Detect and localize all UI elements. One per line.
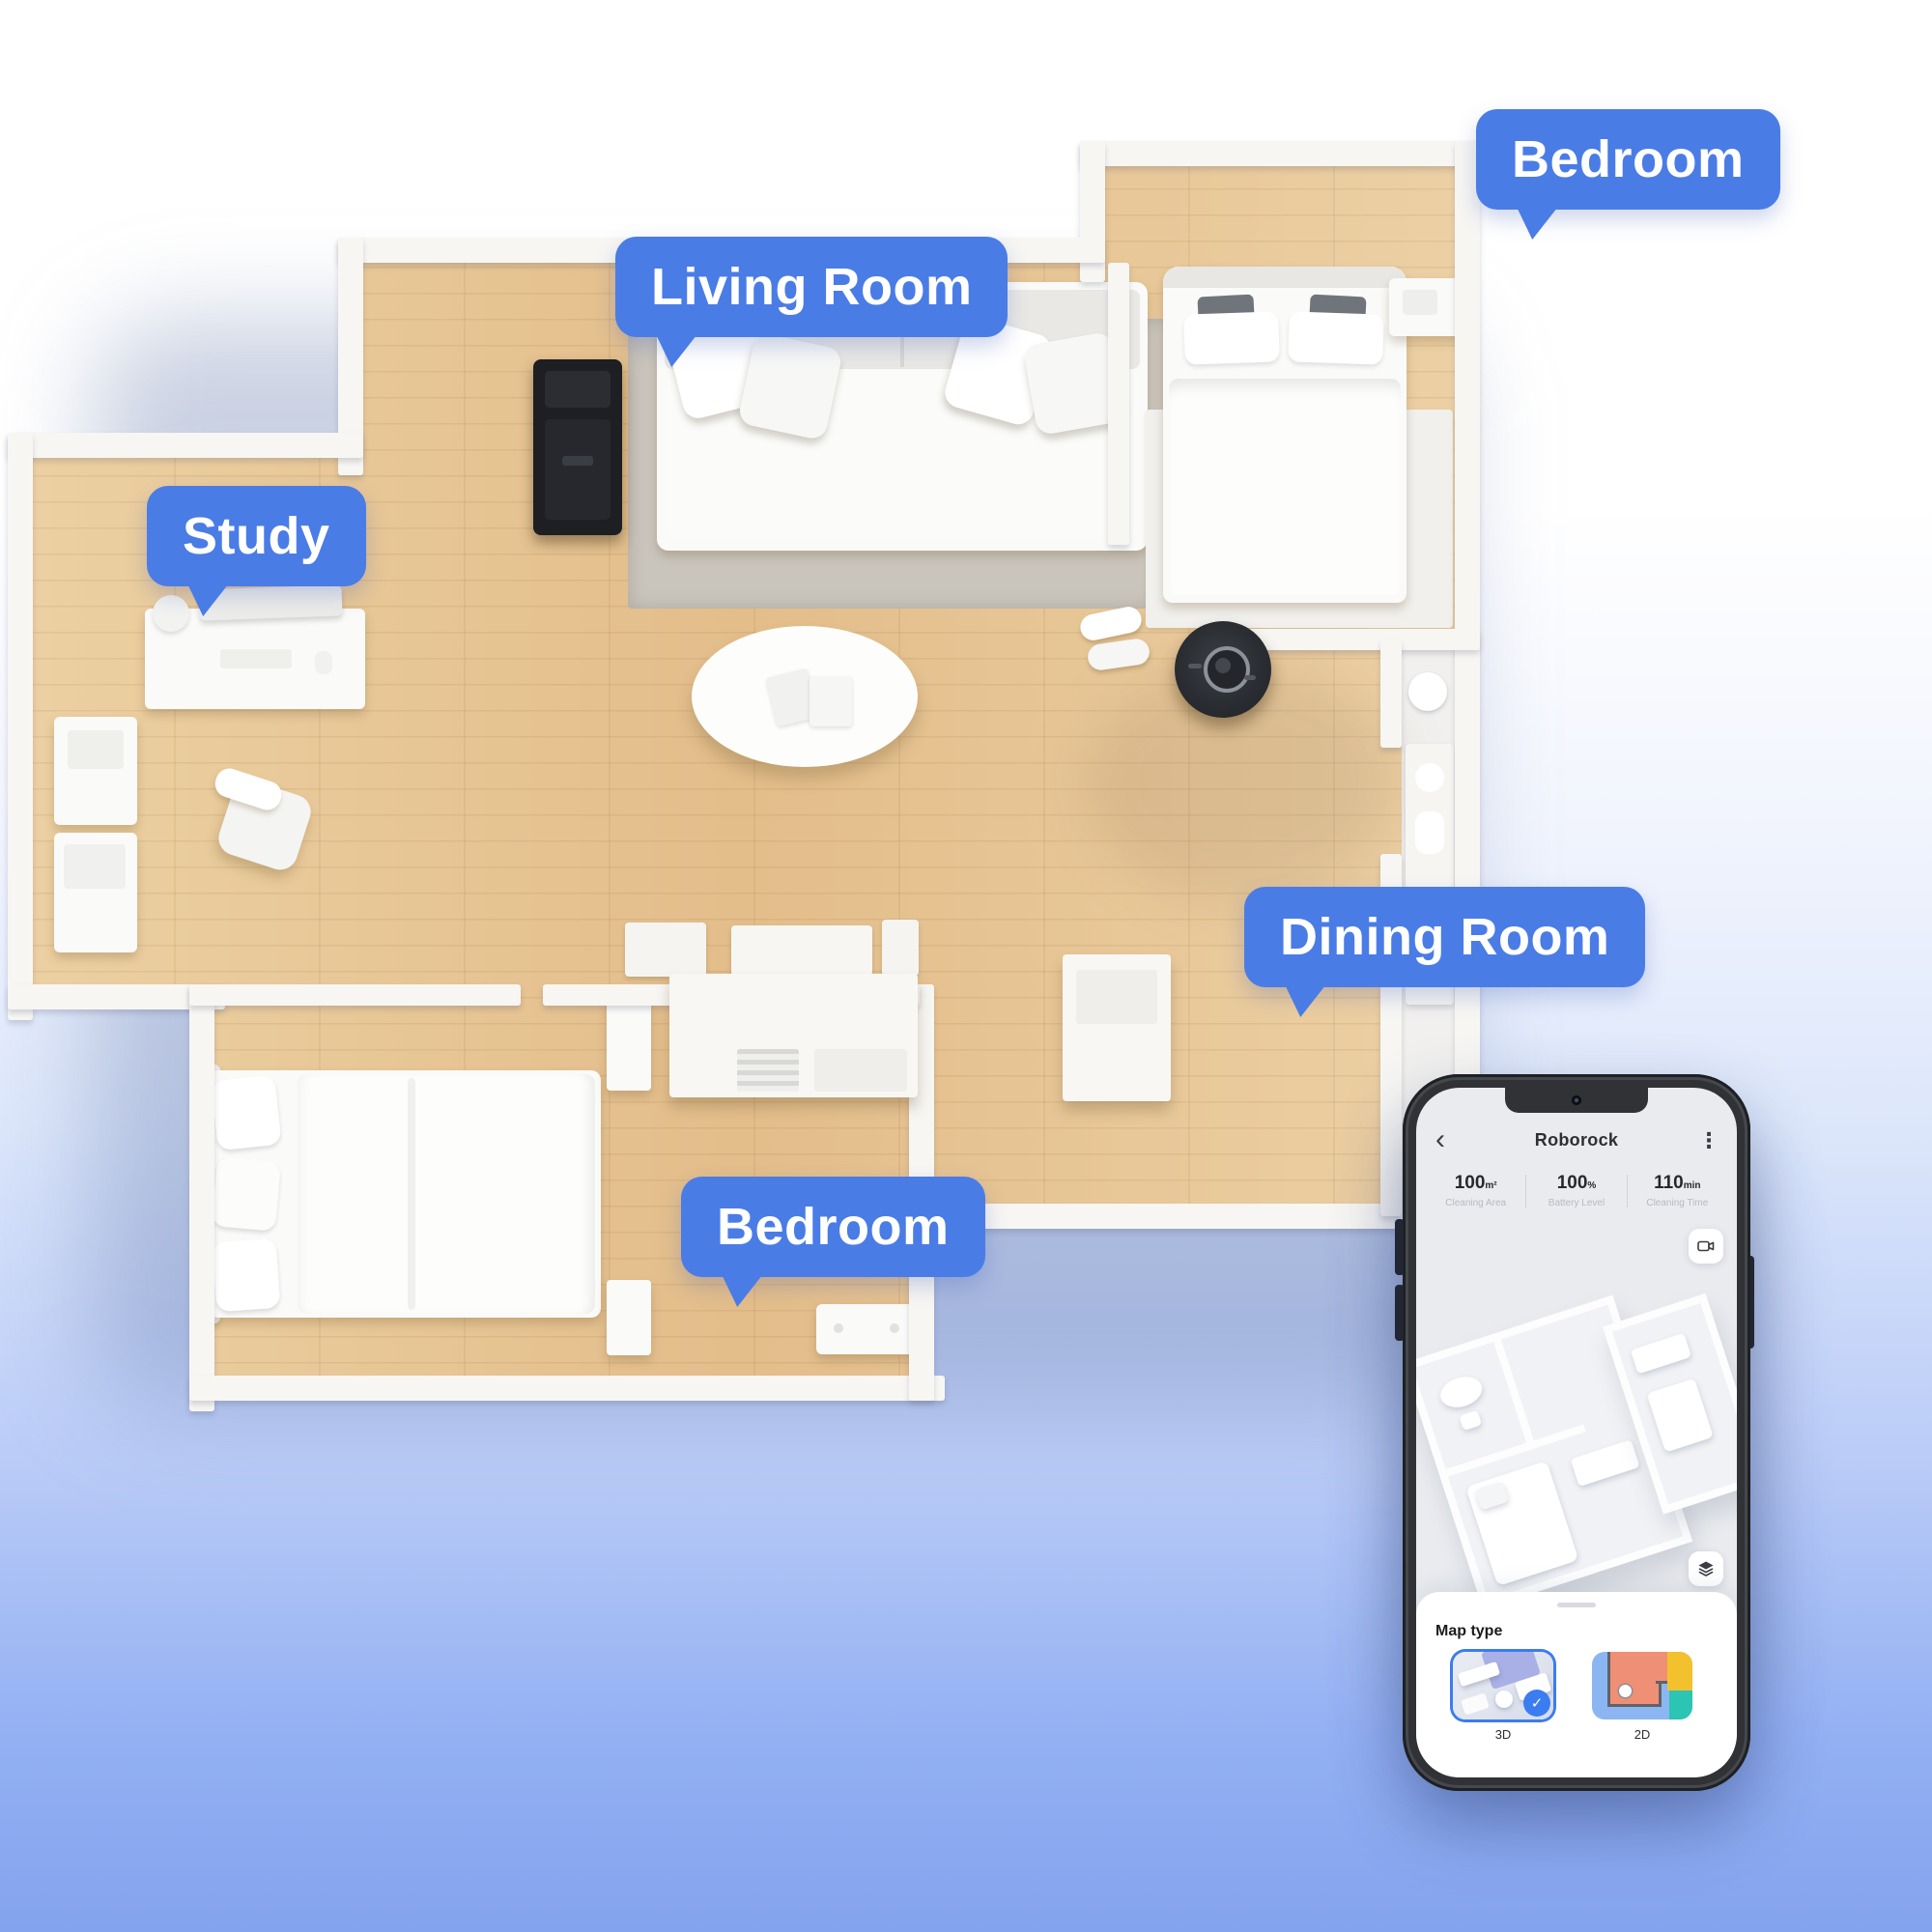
app-title: Roborock [1416,1130,1737,1151]
promo-canvas: Bedroom Living Room Study Dining Room Be… [0,0,1932,1932]
sheet-drag-handle[interactable] [1557,1603,1596,1607]
stat-label: Cleaning Time [1628,1198,1727,1208]
room-label-study: Study [147,486,366,586]
tv-dock-station [533,359,622,535]
duvet [1169,379,1401,595]
wall [1080,141,1480,166]
keyboard [220,649,292,668]
map-type-label-3d: 3D [1453,1727,1553,1742]
room-label-living-room: Living Room [615,237,1008,337]
stats-row: 100m² Cleaning Area 100% Battery Level 1… [1426,1173,1727,1208]
wall [8,433,363,458]
wall [1455,141,1480,1229]
wall [189,984,521,1006]
stat-cleaning-time: 110min Cleaning Time [1628,1173,1727,1208]
phone-screen: ‹ Roborock ⋮ 100m² Cleaning Area 100% Ba… [1416,1088,1737,1777]
map-type-option-3d[interactable]: ✓ 3D [1453,1652,1553,1742]
stat-unit: min [1684,1180,1701,1191]
stat-battery-level: 100% Battery Level [1526,1173,1626,1208]
bed-top-right [1163,267,1406,603]
video-camera-icon [1696,1236,1716,1256]
office-chair [214,773,315,873]
study-cabinet [54,717,137,825]
selected-check-badge: ✓ [1523,1690,1550,1717]
mini-robot-dot [1619,1685,1632,1697]
wardrobe [607,992,651,1091]
study-desk [145,609,365,709]
stat-value: 110 [1654,1173,1684,1193]
check-icon: ✓ [1531,1694,1544,1712]
room-label-text: Bedroom [717,1198,950,1256]
wall [8,433,33,1020]
headboard [1163,267,1406,288]
mini-table [1436,1372,1486,1412]
room-label-text: Living Room [651,258,972,316]
speaker [153,595,189,632]
stat-value: 100 [1455,1173,1486,1193]
pillow [212,1156,281,1231]
sofa-pillow [737,331,843,440]
bathroom-sink [1408,672,1447,711]
kitchen-island [1063,954,1171,1101]
room-label-dining-room: Dining Room [1244,887,1645,987]
stat-unit: m² [1485,1180,1496,1191]
kitchen-counter-box [882,920,919,976]
mini-desk [1571,1439,1640,1487]
video-button[interactable] [1689,1229,1723,1264]
kitchen-counter-box [625,923,706,977]
duvet [298,1074,595,1314]
stat-cleaning-area: 100m² Cleaning Area [1426,1173,1525,1208]
mini-bed [1465,1461,1578,1586]
stat-label: Cleaning Area [1426,1198,1525,1208]
map-type-sheet: Map type ✓ 3D [1416,1592,1737,1777]
mini-chair [1459,1410,1482,1431]
room-label-bedroom-top: Bedroom [1476,109,1780,210]
app-header: ‹ Roborock ⋮ [1416,1126,1737,1161]
mouse [315,651,332,674]
map-3d-thumbnail: ✓ [1453,1652,1553,1719]
room-label-bedroom-bottom: Bedroom [681,1177,985,1277]
room-label-text: Bedroom [1512,130,1745,188]
robot-vacuum [1175,621,1271,718]
wall [1108,263,1129,545]
sheet-heading: Map type [1435,1623,1502,1640]
map-type-option-2d[interactable]: 2D [1592,1652,1692,1742]
layers-button[interactable] [1689,1551,1723,1586]
more-menu-button[interactable]: ⋮ [1698,1128,1719,1153]
dresser [816,1304,919,1354]
stat-label: Battery Level [1526,1198,1626,1208]
coffee-table [692,626,918,767]
front-camera [1572,1095,1581,1105]
phone-notch [1505,1088,1648,1113]
kitchen-island [669,974,918,1097]
pillow [213,1238,281,1312]
bed-bottom-left [209,1070,601,1318]
kitchen-counter-box [731,925,872,976]
island-vent [737,1049,799,1092]
wall [189,984,214,1411]
pillow [1183,311,1280,364]
map-type-label-2d: 2D [1592,1727,1692,1742]
room-label-text: Study [183,507,330,565]
wall [189,1376,945,1401]
label-tail [1515,203,1561,240]
stat-value: 100 [1557,1173,1588,1193]
pillow [1288,311,1384,364]
map-2d-thumbnail [1592,1652,1692,1719]
phone: ‹ Roborock ⋮ 100m² Cleaning Area 100% Ba… [1403,1074,1750,1791]
layers-icon [1696,1559,1716,1578]
pillow [211,1075,281,1151]
stat-unit: % [1587,1180,1596,1191]
wardrobe [607,1280,651,1355]
study-cabinet [54,833,137,952]
mini-sofa [1631,1333,1691,1375]
wall [1380,639,1402,748]
room-label-text: Dining Room [1280,908,1609,966]
